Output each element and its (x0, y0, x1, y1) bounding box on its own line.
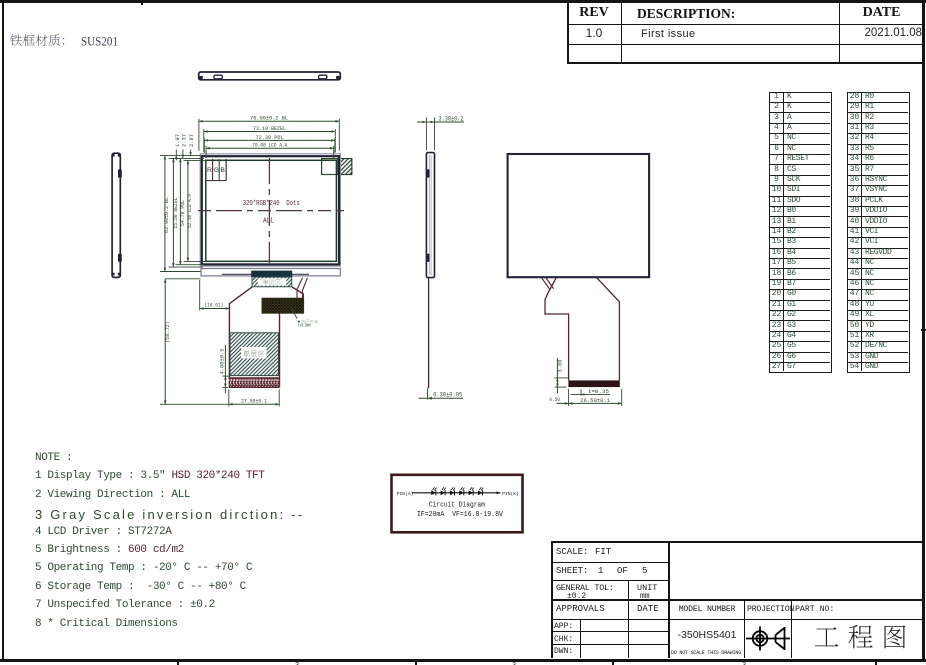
svg-text:t=0.35: t=0.35 (588, 388, 610, 395)
svg-text:26.50±0.1: 26.50±0.1 (580, 397, 610, 404)
svg-text:54.70 POL: 54.70 POL (179, 200, 186, 226)
svg-text:76.90±0.2 BL: 76.90±0.2 BL (250, 115, 288, 122)
svg-text:Circuit Diagram: Circuit Diagram (429, 501, 485, 509)
svg-text:R: R (207, 167, 212, 174)
svg-text:63.90±0.2 BL: 63.90±0.2 BL (163, 197, 170, 233)
svg-text:2.87: 2.87 (188, 134, 195, 147)
svg-text:(58.72): (58.72) (164, 321, 171, 343)
svg-text:70.08 LCD A.A: 70.08 LCD A.A (252, 142, 287, 149)
svg-text:3.30±0.2: 3.30±0.2 (439, 116, 464, 123)
svg-text:G: G (214, 167, 219, 174)
svg-text:0.30±0.05: 0.30±0.05 (433, 392, 462, 399)
svg-text:320*RGB*240 Dots: 320*RGB*240 Dots (243, 200, 300, 208)
svg-text:52.56 LCD A.A: 52.56 LCD A.A (186, 194, 193, 228)
svg-text:T≤0.3mm: T≤0.3mm (298, 324, 311, 329)
svg-text:72.30 POL: 72.30 POL (256, 134, 284, 141)
svg-text:SUS201: SUS201 (81, 33, 118, 48)
svg-text:1.97: 1.97 (174, 134, 181, 147)
svg-text:27.50±0.1: 27.50±0.1 (241, 398, 267, 405)
svg-text:2.37: 2.37 (181, 134, 188, 147)
svg-text:PIN(K): PIN(K) (502, 491, 519, 497)
svg-text:IF=20mA VF=16.8-19.8V: IF=20mA VF=16.8-19.8V (417, 511, 504, 519)
svg-text:73.10 BEZEL: 73.10 BEZEL (253, 125, 286, 132)
svg-text:(16.01): (16.01) (204, 302, 223, 309)
svg-text:3.00: 3.00 (556, 359, 563, 372)
svg-text:55.50 BEZEL: 55.50 BEZEL (172, 197, 179, 228)
svg-text:ALL: ALL (263, 217, 274, 225)
svg-text:4.00±0.5: 4.00±0.5 (219, 348, 226, 374)
svg-text:PIN(A): PIN(A) (397, 491, 414, 497)
svg-text:0.50: 0.50 (549, 396, 560, 403)
svg-text:B: B (220, 167, 225, 174)
